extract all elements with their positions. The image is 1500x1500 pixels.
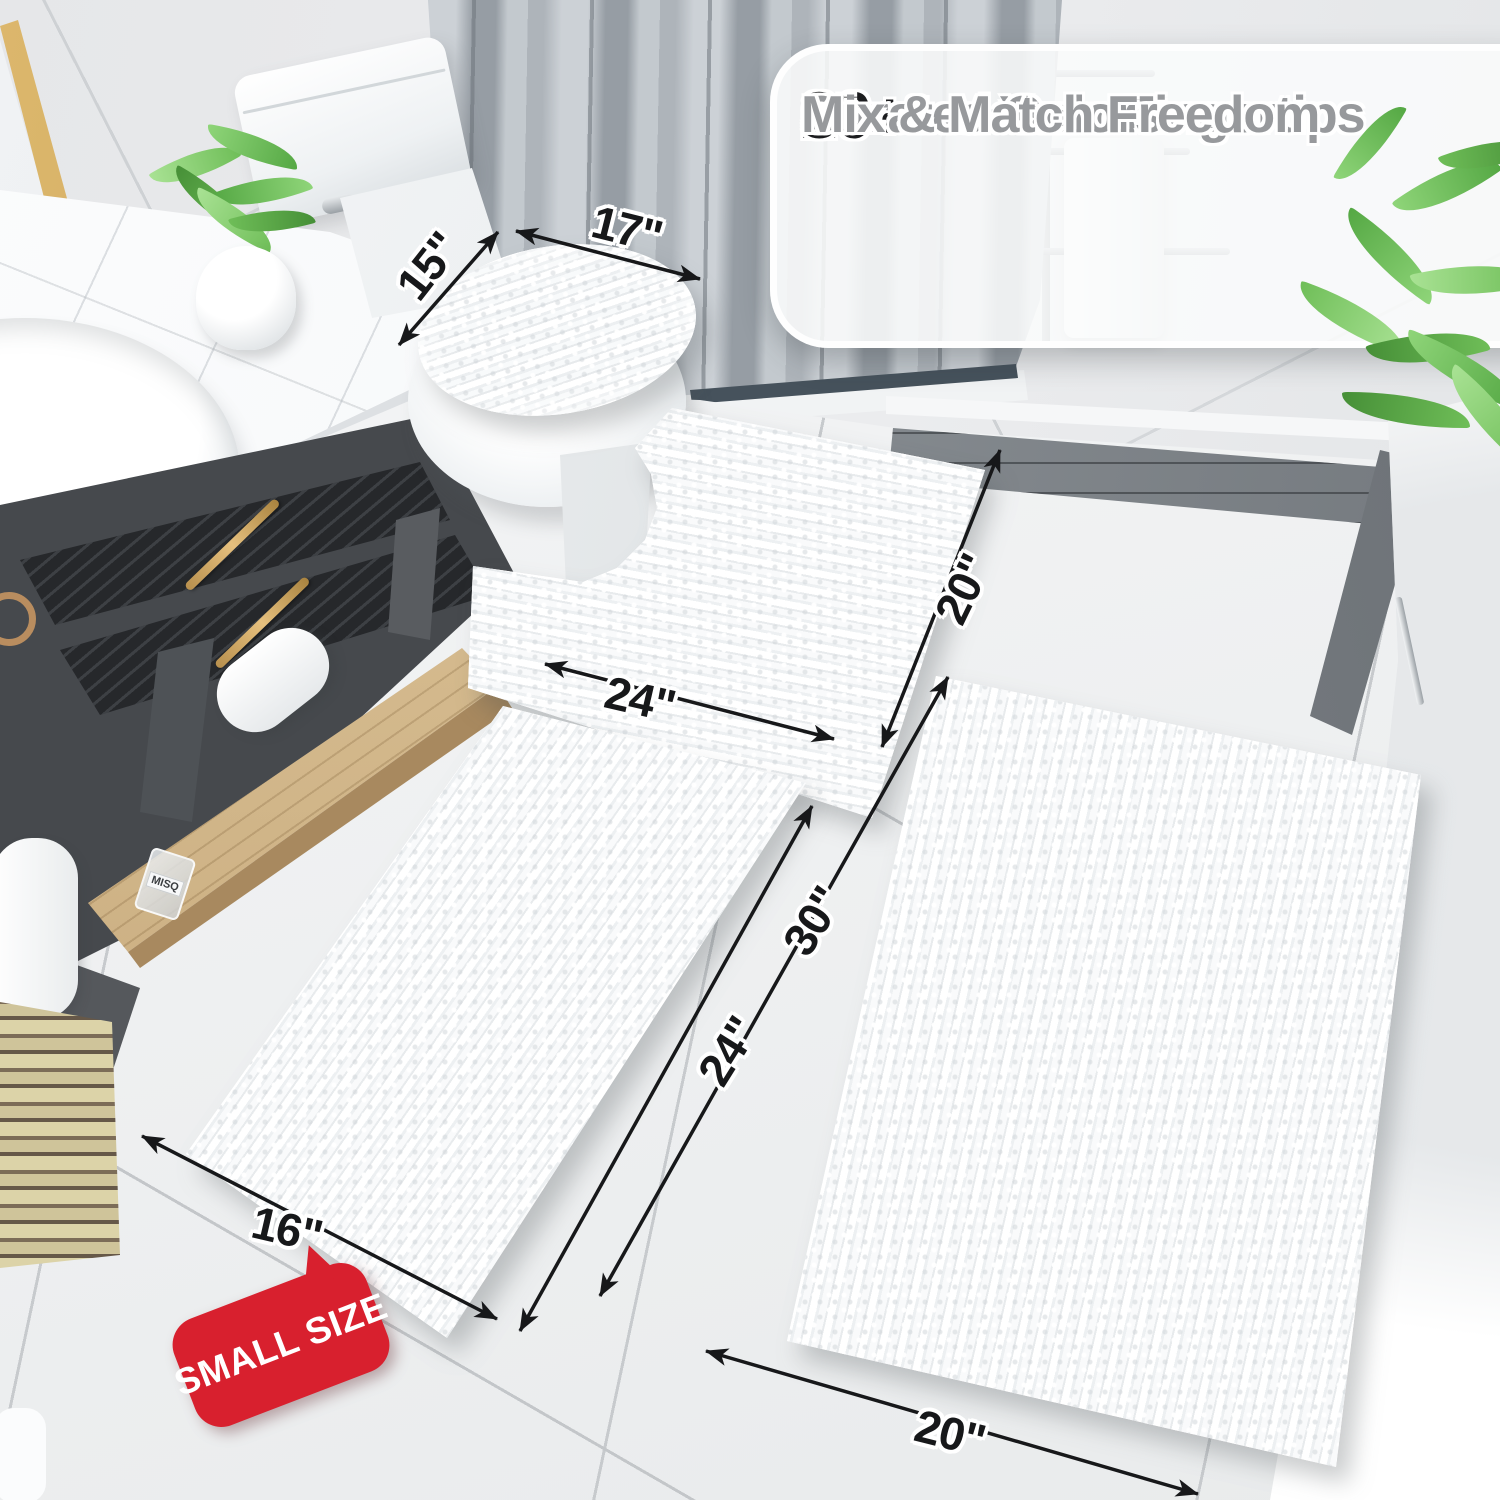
bathroom-product-scene: MISQ 15" 1 [0,0,1500,1500]
badge-tail [301,1242,343,1282]
feature-callout-panel: ✓ 20+ Sizes at Your Fingertips ✓ 30+ Cur… [770,44,1500,348]
feature-label: Mix & Match Freedom [801,89,1319,141]
